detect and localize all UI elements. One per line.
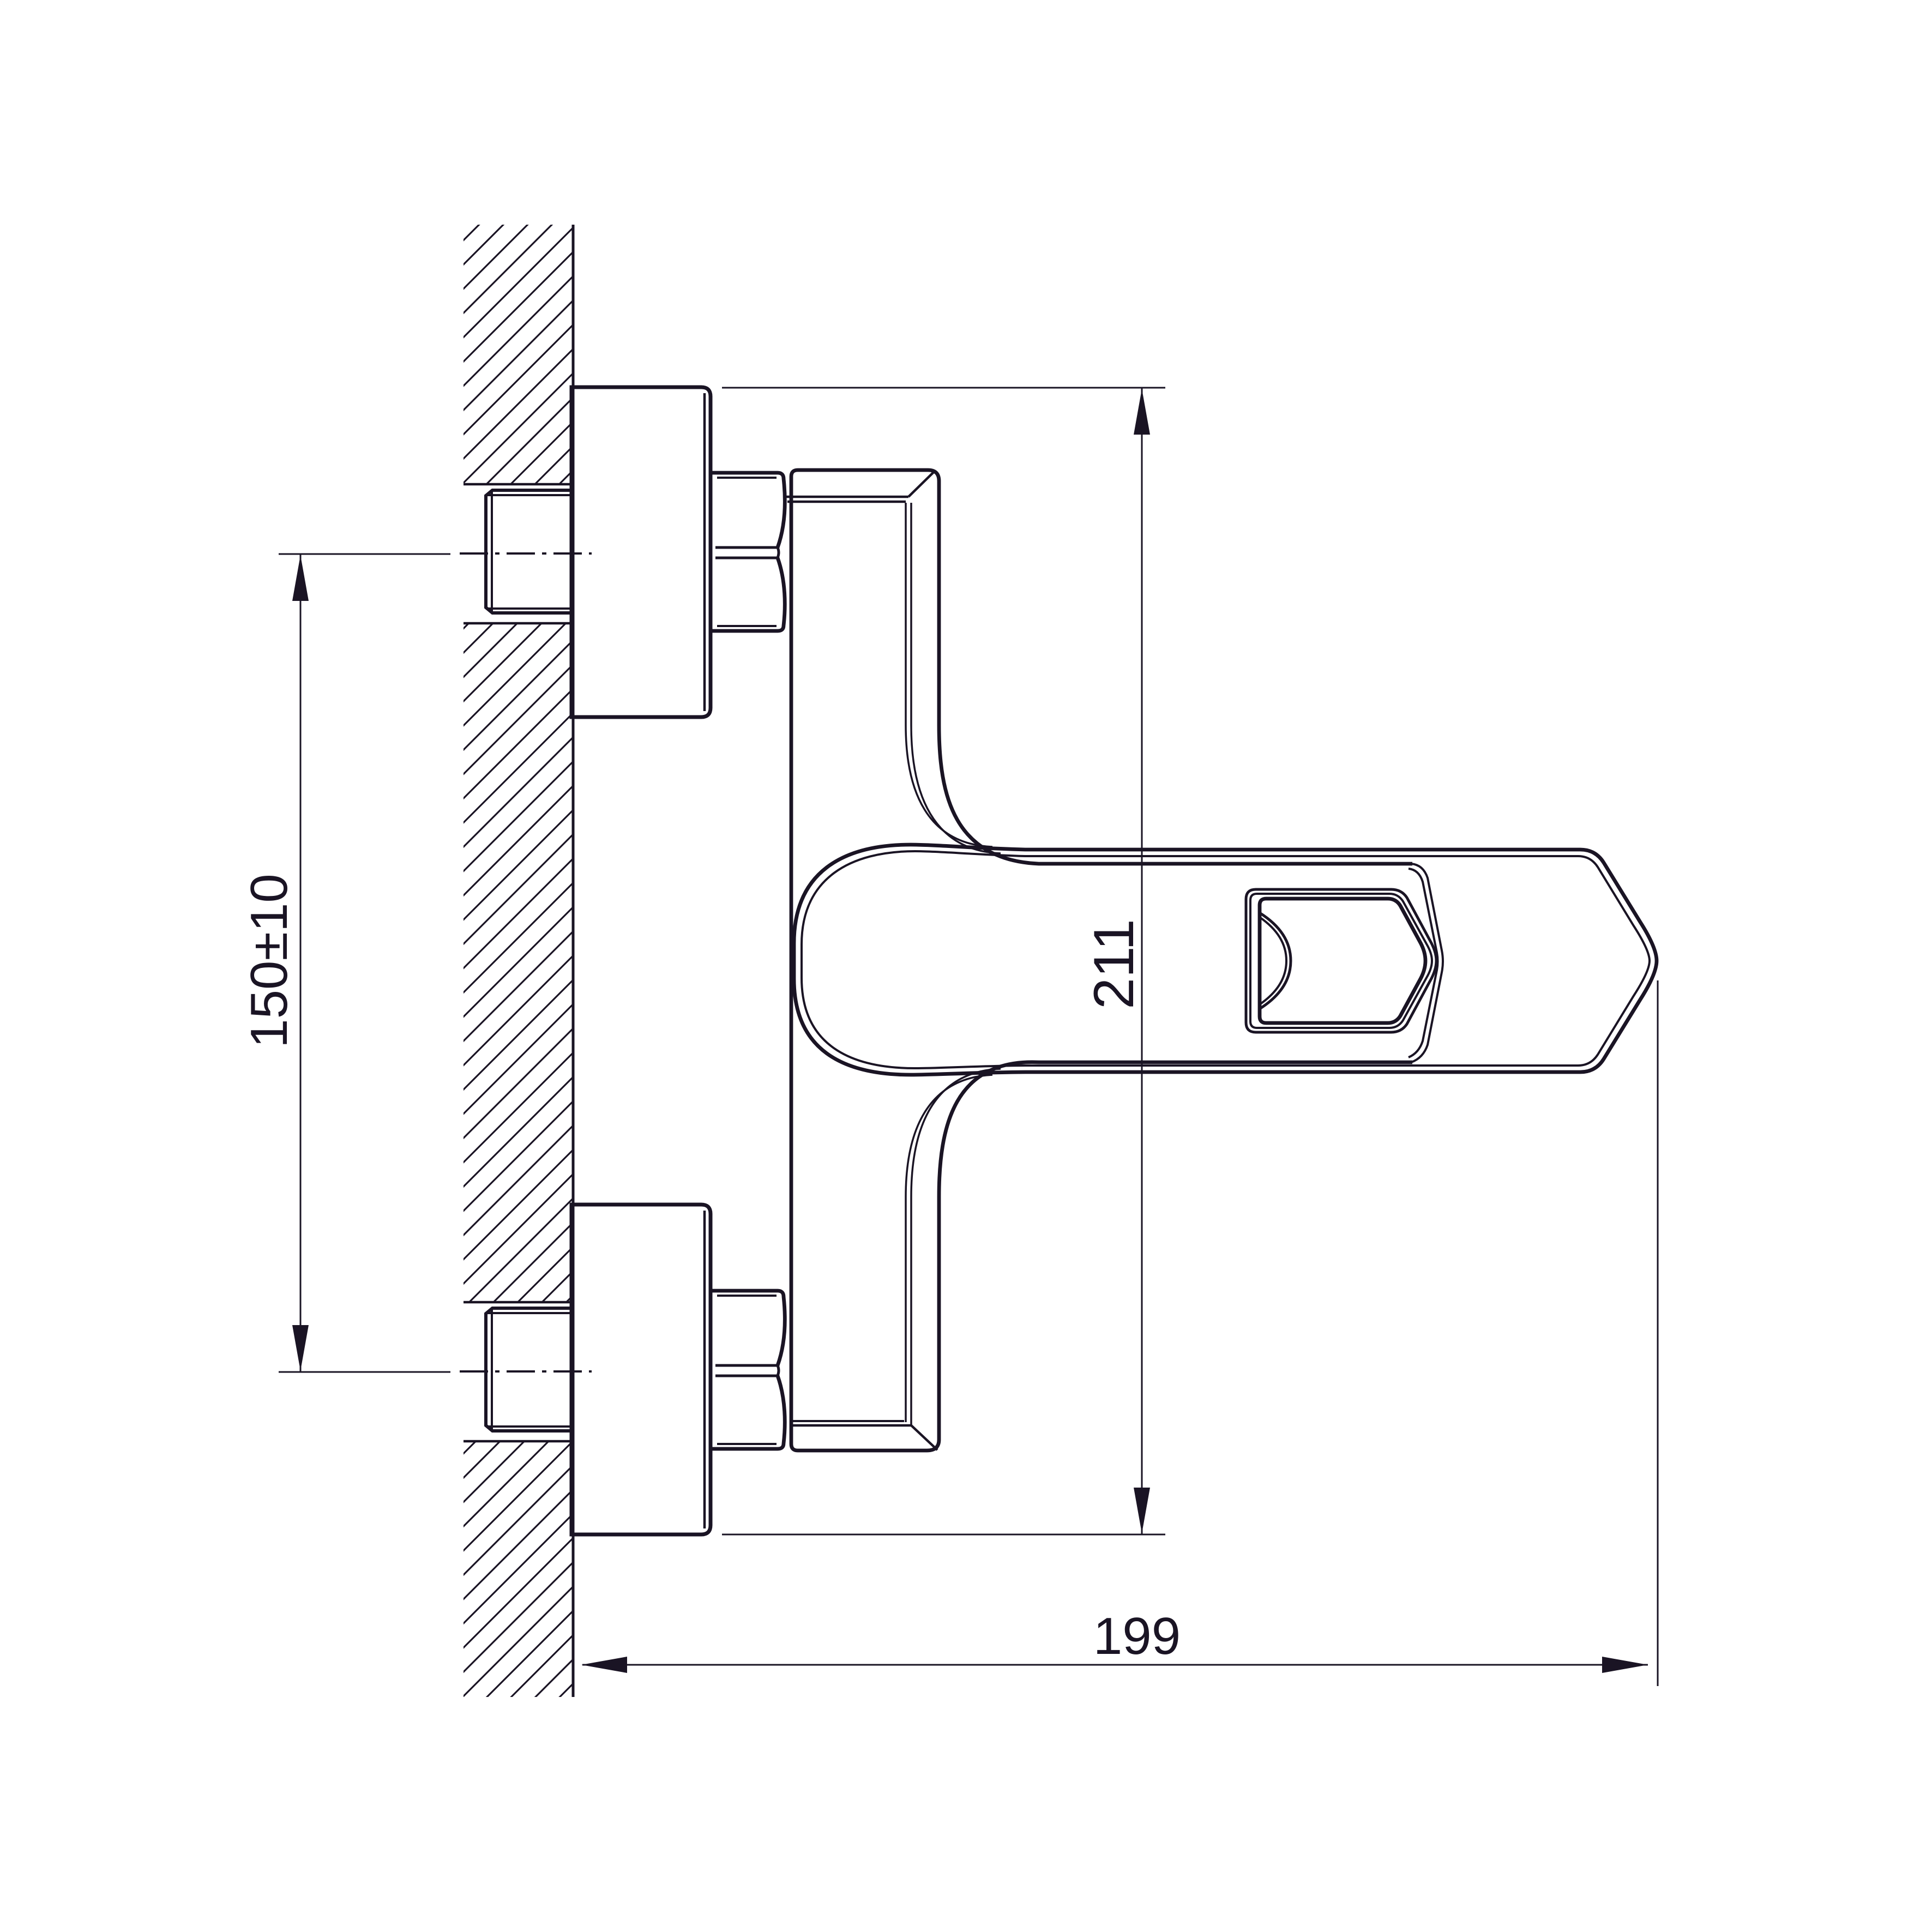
svg-text:150±10: 150±10 <box>240 874 298 1048</box>
svg-text:211: 211 <box>1082 919 1146 1009</box>
svg-text:199: 199 <box>1093 1607 1181 1665</box>
